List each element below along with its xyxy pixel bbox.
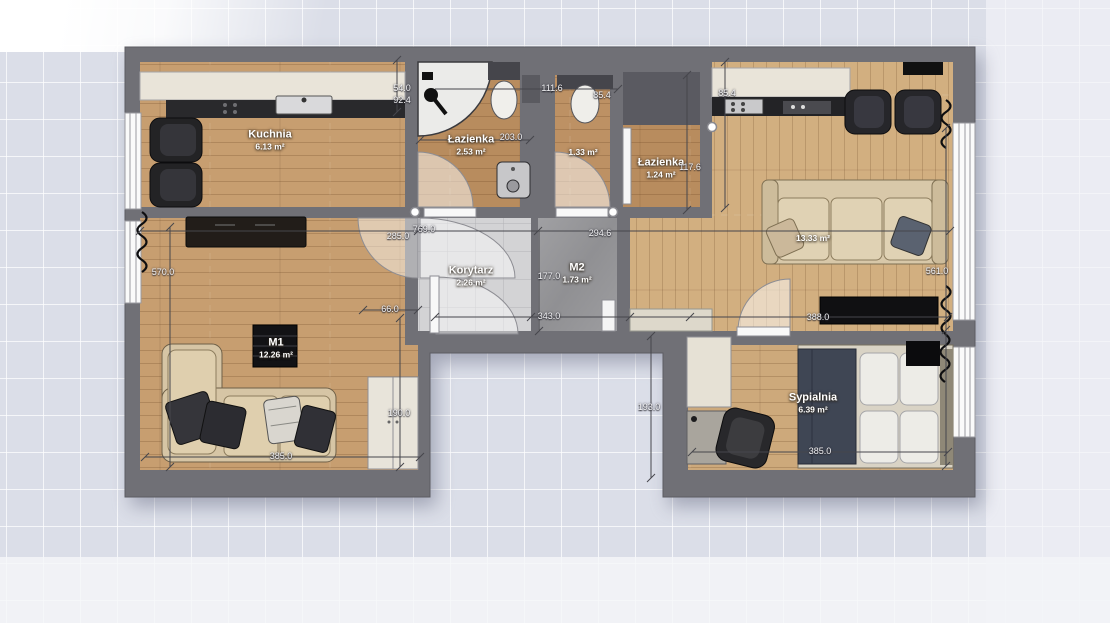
wardrobe[interactable] <box>368 377 418 469</box>
room-label-lazienka-1: Łazienka 2.53 m² <box>448 134 494 157</box>
room-name: Sypialnia <box>789 392 837 404</box>
room-area: 6.13 m² <box>248 141 291 151</box>
door-leaf[interactable] <box>737 327 790 336</box>
dim-label: 177.0 <box>538 271 561 281</box>
room-name: Łazienka <box>448 134 494 146</box>
room-label-wc: 1.33 m² <box>568 147 597 157</box>
room-area: 2.26 m² <box>449 277 494 287</box>
room-label-salon: 13.33 m² <box>796 233 830 243</box>
bar-chair[interactable] <box>845 90 891 134</box>
room-area: 1.33 m² <box>568 147 597 157</box>
door-leaf[interactable] <box>556 208 608 217</box>
dim-label: 111.6 <box>541 83 562 93</box>
room-label-korytarz: Korytarz 2.26 m² <box>449 265 494 288</box>
room-area: 6.39 m² <box>789 404 837 414</box>
room-area: 13.33 m² <box>796 233 830 243</box>
dim-label: 203.0 <box>500 132 523 142</box>
dim-label: 85.4 <box>718 88 736 98</box>
dim-label: 385.0 <box>270 451 293 461</box>
room-area: 1.24 m² <box>638 169 684 179</box>
room-label-m2: M2 1.73 m² <box>562 262 591 285</box>
dim-label: 66.0 <box>381 304 399 314</box>
room-name: M1 <box>268 337 283 349</box>
dim-label: 285.0 <box>387 231 410 241</box>
dim-label: 343.0 <box>538 311 561 321</box>
dim-label: 561.0 <box>926 266 949 276</box>
sideboard[interactable] <box>186 217 306 247</box>
toilet[interactable] <box>488 62 520 119</box>
dim-label: 294.6 <box>589 228 612 238</box>
wall-node-handle[interactable] <box>411 208 420 217</box>
window[interactable] <box>953 123 975 320</box>
dim-label: 388.0 <box>807 312 830 322</box>
room-name: Korytarz <box>449 265 494 277</box>
dim-label: 570.0 <box>152 267 175 277</box>
lazienka2-dark-zone <box>623 72 700 125</box>
door-leaf[interactable] <box>424 208 476 217</box>
bar-chair[interactable] <box>895 90 941 134</box>
dim-label: 769.0 <box>413 224 436 234</box>
window[interactable] <box>953 347 975 437</box>
kitchen-chair[interactable] <box>150 163 202 207</box>
dim-label: 385.0 <box>809 446 832 456</box>
kitchen-chair[interactable] <box>150 118 202 162</box>
dim-label: 92.4 <box>393 95 411 105</box>
room-label-m1: M1 12.26 m² <box>259 337 293 360</box>
room-name: Łazienka <box>638 157 684 169</box>
door-leaf[interactable] <box>430 276 439 333</box>
desk[interactable] <box>687 337 731 407</box>
window[interactable] <box>125 113 141 209</box>
tv-console[interactable] <box>820 297 938 324</box>
room-name: Kuchnia <box>248 129 291 141</box>
room-name: M2 <box>569 262 584 274</box>
dim-label: 85.4 <box>593 90 611 100</box>
room-label-lazienka-2: Łazienka 1.24 m² <box>638 157 684 180</box>
room-label-sypialnia: Sypialnia 6.39 m² <box>789 392 837 415</box>
door-leaf[interactable] <box>623 128 631 204</box>
room-area: 1.73 m² <box>562 274 591 284</box>
wall-node-handle[interactable] <box>708 123 717 132</box>
low-cabinet[interactable] <box>630 309 712 331</box>
dim-label: 190.0 <box>388 408 411 418</box>
wall-node-handle[interactable] <box>609 208 618 217</box>
room-area: 2.53 m² <box>448 146 494 156</box>
room-area: 12.26 m² <box>259 349 293 359</box>
dim-label: 117.6 <box>679 162 701 172</box>
sofa[interactable] <box>762 180 948 264</box>
dim-label: 54.0 <box>393 83 411 93</box>
kitchen-counter[interactable] <box>140 72 405 118</box>
room-label-kuchnia: Kuchnia 6.13 m² <box>248 129 291 152</box>
wall-tv[interactable] <box>906 341 940 366</box>
washing-machine[interactable] <box>497 162 530 198</box>
door-leaf[interactable] <box>602 300 615 331</box>
dim-label: 193.0 <box>638 402 661 412</box>
floorplanner-canvas[interactable]: Kuchnia 6.13 m² Łazienka 2.53 m² 1.33 m²… <box>0 0 1110 623</box>
